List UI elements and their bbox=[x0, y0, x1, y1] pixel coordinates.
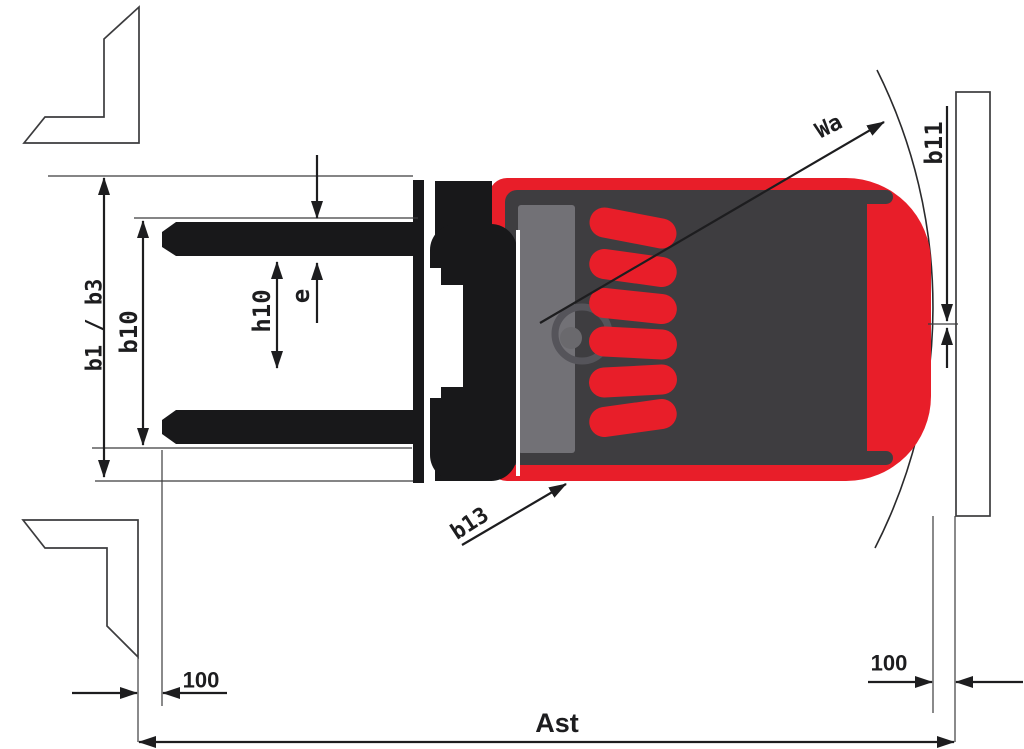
forklift-dimension-diagram: b1 / b3 b10 h10 e Wa b11 b13 100 100 Ast bbox=[0, 0, 1024, 749]
label-clearance-left: 100 bbox=[183, 668, 220, 693]
coil-bar bbox=[588, 364, 677, 399]
load-corner-top-left bbox=[24, 7, 139, 143]
label-wa: Wa bbox=[812, 110, 847, 144]
wheel-arm-cutout bbox=[425, 268, 441, 398]
label-h10: h10 bbox=[248, 289, 276, 332]
label-b10: b10 bbox=[115, 310, 143, 353]
rack-wall-right bbox=[956, 92, 990, 516]
coil-bar bbox=[588, 326, 677, 361]
label-b1-b3: b1 / b3 bbox=[83, 279, 108, 372]
label-clearance-right: 100 bbox=[871, 651, 908, 676]
wheel-arm-cutout-inner bbox=[441, 285, 463, 387]
fork-upper bbox=[162, 222, 413, 256]
steering-hub-icon bbox=[560, 327, 582, 349]
label-b13: b13 bbox=[447, 503, 494, 546]
label-ast: Ast bbox=[535, 708, 579, 738]
diagram-canvas: b1 / b3 b10 h10 e Wa b11 b13 100 100 Ast bbox=[0, 0, 1024, 749]
label-e: e bbox=[287, 289, 315, 303]
label-b11: b11 bbox=[920, 121, 948, 164]
fork-lower bbox=[162, 410, 413, 444]
fork-carriage-bar bbox=[413, 180, 424, 483]
wheel-body-gap bbox=[516, 230, 520, 476]
load-corner-bottom-left bbox=[23, 520, 138, 657]
